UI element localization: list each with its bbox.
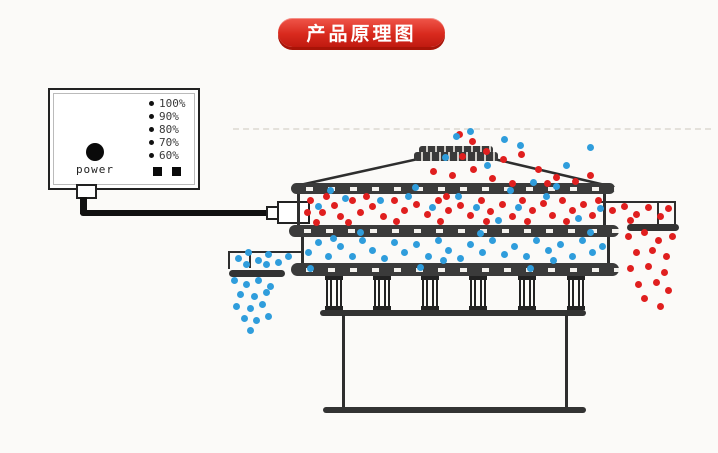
red-particle <box>478 197 485 204</box>
blue-particle <box>553 183 560 190</box>
red-particle <box>549 212 556 219</box>
base-plate <box>323 407 586 413</box>
blue-particle <box>263 261 270 268</box>
blue-particle <box>401 249 408 256</box>
red-particle <box>393 218 400 225</box>
red-particle <box>304 209 311 216</box>
red-particle <box>645 263 652 270</box>
blue-particle <box>275 259 282 266</box>
blue-particle <box>477 230 484 237</box>
blue-particle <box>235 255 242 262</box>
blue-particle <box>285 253 292 260</box>
blue-particle <box>597 205 604 212</box>
blue-particle <box>467 128 474 135</box>
blue-particle <box>255 257 262 264</box>
blue-particle <box>357 229 364 236</box>
blue-particle <box>259 301 266 308</box>
red-particle <box>470 166 477 173</box>
red-particle <box>589 212 596 219</box>
blue-particle <box>315 203 322 210</box>
spring-column <box>432 280 438 306</box>
blue-particle <box>545 247 552 254</box>
blue-particle <box>440 257 447 264</box>
blue-particle <box>247 327 254 334</box>
red-particle <box>357 209 364 216</box>
red-particle <box>559 197 566 204</box>
blue-particle <box>517 142 524 149</box>
red-particle <box>345 219 352 226</box>
blue-particle <box>501 251 508 258</box>
red-particle <box>657 303 664 310</box>
red-particle <box>645 204 652 211</box>
spring-column <box>529 280 535 306</box>
red-particle <box>509 180 516 187</box>
red-particle <box>331 202 338 209</box>
blue-particle <box>381 255 388 262</box>
red-particle <box>524 218 531 225</box>
red-particle <box>572 178 579 185</box>
blue-particle <box>587 144 594 151</box>
spring-column <box>578 280 584 306</box>
blue-particle <box>455 193 462 200</box>
fine-outlet-lip <box>229 270 285 277</box>
blue-particle <box>429 204 436 211</box>
blue-particle <box>413 241 420 248</box>
red-particle <box>649 247 656 254</box>
red-particle <box>413 201 420 208</box>
blue-particle <box>511 243 518 250</box>
blue-particle <box>533 237 540 244</box>
red-particle <box>483 148 490 155</box>
red-particle <box>655 237 662 244</box>
blue-particle <box>473 204 480 211</box>
spring-column <box>519 280 525 306</box>
blue-particle <box>523 253 530 260</box>
red-particle <box>625 233 632 240</box>
blue-particle <box>417 264 424 271</box>
blue-particle <box>253 317 260 324</box>
red-particle <box>529 207 536 214</box>
red-particle <box>319 209 326 216</box>
red-particle <box>437 218 444 225</box>
red-particle <box>499 201 506 208</box>
blue-particle <box>550 257 557 264</box>
red-particle <box>569 207 576 214</box>
red-particle <box>518 151 525 158</box>
red-particle <box>457 202 464 209</box>
red-particle <box>391 197 398 204</box>
red-particle <box>641 229 648 236</box>
red-particle <box>500 156 507 163</box>
red-particle <box>443 193 450 200</box>
blue-particle <box>457 255 464 262</box>
red-particle <box>401 207 408 214</box>
red-particle <box>483 218 490 225</box>
red-particle <box>665 287 672 294</box>
lower-chamber-right-wall <box>607 237 610 263</box>
blue-particle <box>233 303 240 310</box>
blue-particle <box>337 243 344 250</box>
blue-particle <box>391 239 398 246</box>
spring-column <box>384 280 390 306</box>
red-particle <box>587 172 594 179</box>
blue-particle <box>501 136 508 143</box>
blue-particle <box>587 229 594 236</box>
red-particle <box>430 168 437 175</box>
red-particle <box>489 175 496 182</box>
blue-particle <box>405 193 412 200</box>
blue-particle <box>231 277 238 284</box>
spring-column <box>568 280 574 306</box>
blue-particle <box>412 184 419 191</box>
blue-particle <box>325 253 332 260</box>
red-particle <box>424 211 431 218</box>
blue-particle <box>247 305 254 312</box>
red-particle <box>663 253 670 260</box>
blue-particle <box>445 247 452 254</box>
blue-particle <box>563 162 570 169</box>
blue-particle <box>245 249 252 256</box>
spring-column <box>336 280 342 306</box>
blue-particle <box>305 249 312 256</box>
spring-column <box>470 280 476 306</box>
red-particle <box>661 269 668 276</box>
coarse-outlet-lip <box>627 224 679 231</box>
blue-particle <box>579 237 586 244</box>
red-particle <box>633 249 640 256</box>
red-particle <box>459 153 466 160</box>
spring-column <box>422 280 428 306</box>
blue-particle <box>265 313 272 320</box>
principle-diagram: 产品原理图 power 100%90%80%70%60% <box>0 0 718 453</box>
red-particle <box>665 205 672 212</box>
blue-particle <box>237 291 244 298</box>
red-particle <box>641 295 648 302</box>
blue-particle <box>425 253 432 260</box>
blue-particle <box>442 154 449 161</box>
red-particle <box>595 197 602 204</box>
blue-particle <box>569 253 576 260</box>
blue-particle <box>484 162 491 169</box>
red-particle <box>307 197 314 204</box>
blue-particle <box>453 133 460 140</box>
red-particle <box>669 233 676 240</box>
blue-particle <box>575 215 582 222</box>
blue-particle <box>495 217 502 224</box>
spring-column <box>326 280 332 306</box>
blue-particle <box>265 251 272 258</box>
blue-particle <box>349 253 356 260</box>
red-particle <box>445 207 452 214</box>
blue-particle <box>589 249 596 256</box>
red-particle <box>540 200 547 207</box>
upper-chamber-left-wall <box>297 194 300 225</box>
blue-particle <box>435 237 442 244</box>
blue-particle <box>251 293 258 300</box>
blue-particle <box>243 281 250 288</box>
spring-column <box>374 280 380 306</box>
red-particle <box>349 197 356 204</box>
red-particle <box>621 203 628 210</box>
red-particle <box>609 207 616 214</box>
red-particle <box>563 218 570 225</box>
blue-particle <box>530 179 537 186</box>
red-particle <box>435 197 442 204</box>
blue-particle <box>263 289 270 296</box>
red-particle <box>337 213 344 220</box>
red-particle <box>633 211 640 218</box>
red-particle <box>627 217 634 224</box>
spring-column <box>480 280 486 306</box>
red-particle <box>449 172 456 179</box>
red-particle <box>653 279 660 286</box>
blue-particle <box>243 261 250 268</box>
red-particle <box>627 265 634 272</box>
blue-particle <box>479 249 486 256</box>
red-particle <box>519 197 526 204</box>
base-right-wall <box>565 315 568 408</box>
red-particle <box>535 166 542 173</box>
screen-deck-middle <box>289 225 619 237</box>
blue-particle <box>369 247 376 254</box>
blue-particle <box>307 265 314 272</box>
blue-particle <box>489 237 496 244</box>
blue-particle <box>599 243 606 250</box>
red-particle <box>657 213 664 220</box>
screen-deck-bottom <box>291 263 619 276</box>
base-flange <box>320 310 586 316</box>
blue-particle <box>377 197 384 204</box>
blue-particle <box>359 237 366 244</box>
blue-particle <box>543 193 550 200</box>
red-particle <box>369 203 376 210</box>
red-particle <box>469 138 476 145</box>
red-particle <box>487 208 494 215</box>
red-particle <box>467 212 474 219</box>
red-particle <box>509 213 516 220</box>
red-particle <box>363 193 370 200</box>
blue-particle <box>527 265 534 272</box>
base-left-wall <box>342 315 345 408</box>
blue-particle <box>241 315 248 322</box>
blue-particle <box>467 241 474 248</box>
screen-deck-top <box>291 183 615 194</box>
red-particle <box>380 213 387 220</box>
red-particle <box>635 281 642 288</box>
red-particle <box>580 201 587 208</box>
red-particle <box>553 174 560 181</box>
blue-particle <box>515 204 522 211</box>
blue-particle <box>255 277 262 284</box>
blue-particle <box>330 235 337 242</box>
blue-particle <box>342 195 349 202</box>
blue-particle <box>507 187 514 194</box>
red-particle <box>323 193 330 200</box>
red-particle <box>313 219 320 226</box>
red-particle <box>544 180 551 187</box>
blue-particle <box>315 239 322 246</box>
blue-particle <box>557 241 564 248</box>
blue-particle <box>327 187 334 194</box>
